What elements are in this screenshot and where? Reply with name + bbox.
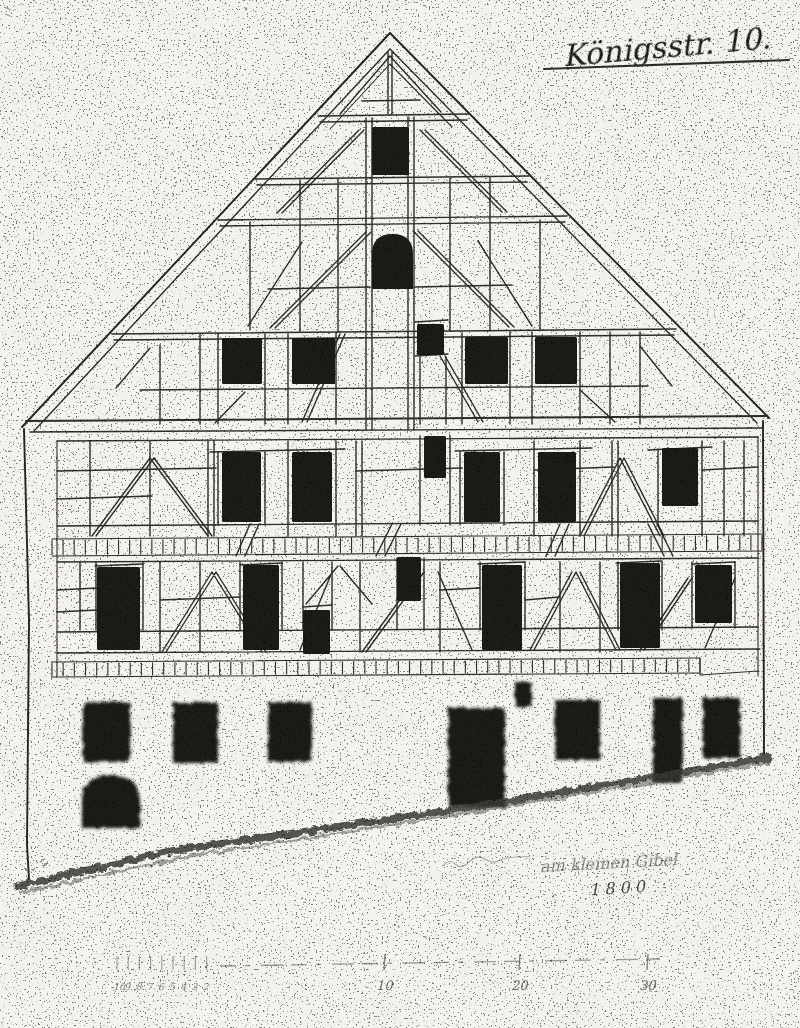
facade-elevation-drawing: Königsstr. 10. am kleinen Gibel 1800 109… xyxy=(0,0,800,1028)
scanned-drawing-page: Königsstr. 10. am kleinen Gibel 1800 109… xyxy=(0,0,800,1028)
photocopy-noise xyxy=(0,0,800,1028)
